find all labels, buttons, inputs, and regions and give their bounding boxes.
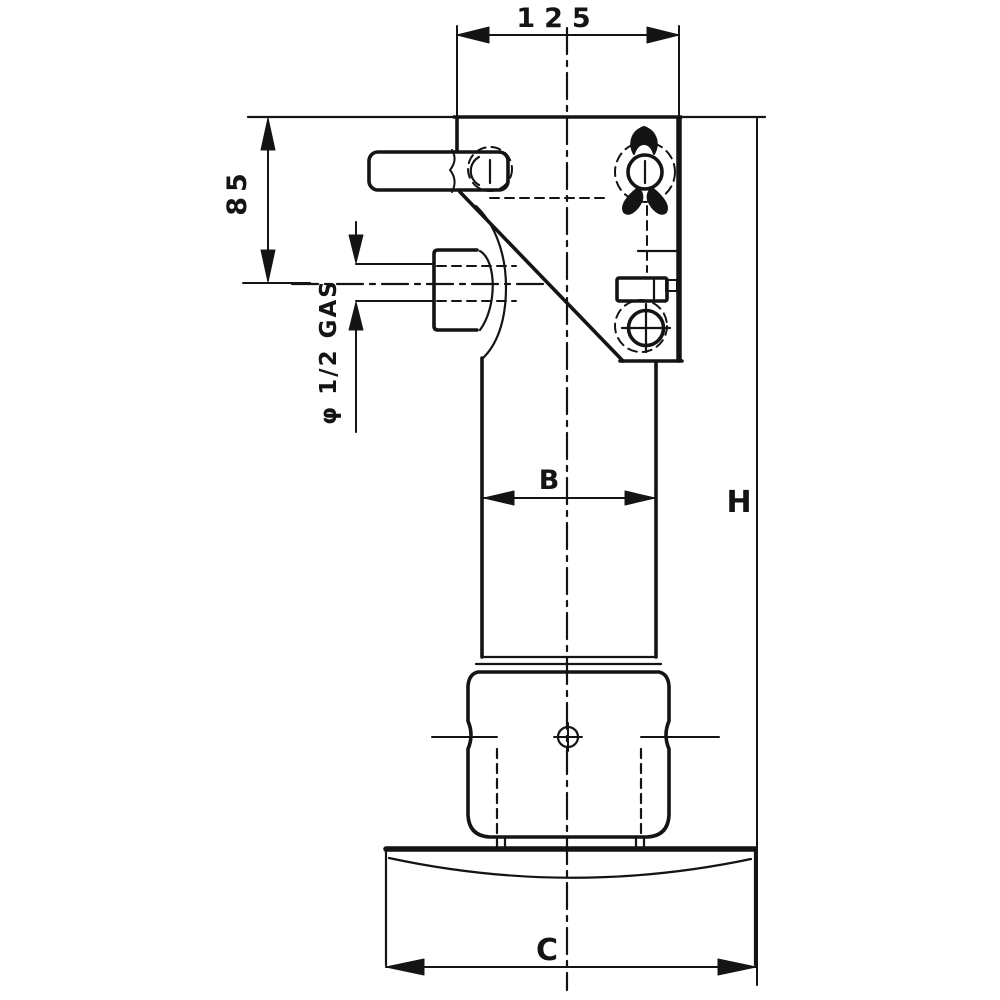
plate-dished-surface (389, 858, 751, 878)
arrowhead-left (484, 491, 514, 505)
dim-label-125: 125 (516, 3, 599, 34)
arrowhead-left (386, 959, 424, 975)
arrowhead-down (349, 235, 363, 263)
release-valve (615, 127, 675, 214)
port-boss-curve (476, 206, 506, 359)
arrowhead-left (457, 27, 489, 43)
valve-wing-bottom-right (648, 188, 667, 214)
handle-socket (369, 147, 512, 192)
port-inner-curve (480, 251, 493, 330)
dimension-port-thread: φ 1/2 GAS (292, 222, 548, 432)
arrowhead-right (625, 491, 655, 505)
dim-label-C: C (536, 933, 558, 968)
cylinder-head-block (369, 117, 682, 361)
handle-break-line (450, 150, 455, 192)
center-mark (554, 723, 582, 751)
dimension-H: H (726, 118, 757, 985)
dim-label-port: φ 1/2 GAS (316, 279, 342, 425)
center-mark-cross (554, 723, 582, 751)
technical-drawing: 125 85 φ 1/2 GAS (0, 0, 1000, 1000)
handle-bore-arc (471, 157, 479, 185)
cylinder-tube (482, 358, 656, 657)
dim-label-B: B (539, 465, 560, 496)
dim-label-H: H (726, 485, 751, 520)
base-collar (432, 657, 719, 849)
dimension-85: 85 (222, 118, 310, 283)
arrowhead-top (261, 118, 275, 150)
arrowhead-bottom (261, 250, 275, 282)
filler-screw (615, 300, 670, 352)
dimension-C: C (386, 933, 756, 975)
dimension-B: B (483, 465, 656, 505)
valve-wing-top (631, 127, 657, 154)
inlet-port (434, 206, 516, 359)
port-body (434, 250, 477, 330)
head-diagonal-edge (460, 192, 623, 361)
base-plate (386, 849, 757, 967)
drawing-canvas: 125 85 φ 1/2 GAS (0, 0, 1000, 1000)
dim-label-85: 85 (222, 168, 253, 216)
arrowhead-right (718, 959, 756, 975)
arrowhead-right (647, 27, 679, 43)
collar-outline (468, 672, 669, 837)
plug-body (617, 278, 667, 301)
handle-tube (369, 152, 508, 190)
